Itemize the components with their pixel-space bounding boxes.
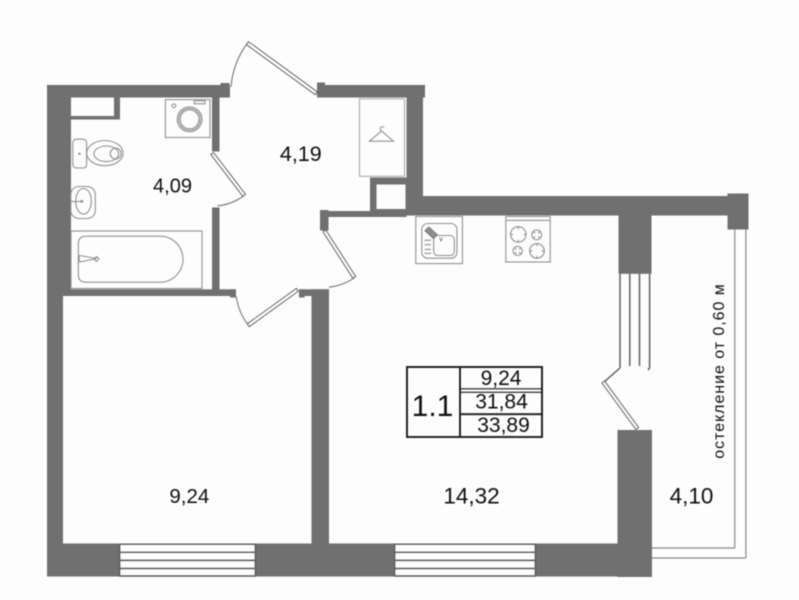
- svg-text:1.1: 1.1: [412, 390, 454, 423]
- svg-text:9,24: 9,24: [481, 367, 522, 390]
- svg-text:остекление от 0,60 м: остекление от 0,60 м: [711, 283, 728, 458]
- svg-text:14,32: 14,32: [443, 483, 499, 508]
- svg-text:9,24: 9,24: [169, 485, 209, 508]
- svg-text:31,84: 31,84: [475, 391, 528, 414]
- svg-text:4,09: 4,09: [153, 176, 192, 198]
- svg-text:33,89: 33,89: [477, 414, 530, 437]
- svg-text:4,10: 4,10: [670, 484, 714, 509]
- svg-text:4,19: 4,19: [280, 142, 322, 166]
